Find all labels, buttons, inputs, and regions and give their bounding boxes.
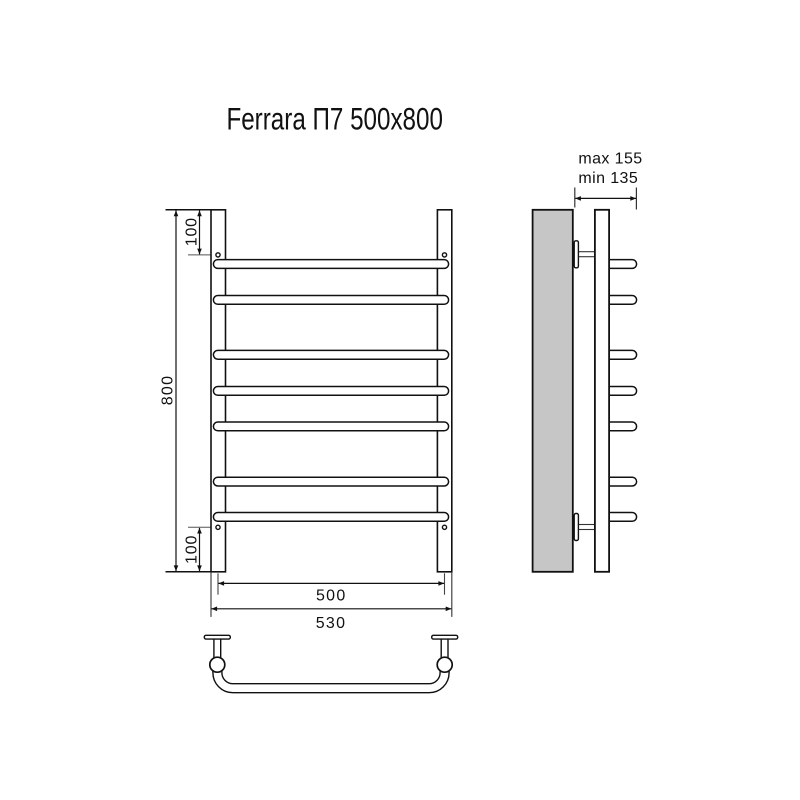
svg-text:800: 800 [160,375,177,406]
svg-text:min 135: min 135 [578,170,638,187]
svg-text:530: 530 [316,615,347,632]
svg-text:500: 500 [316,588,347,605]
svg-text:100: 100 [184,217,201,246]
svg-text:100: 100 [184,535,201,564]
svg-text:Ferrara П7 500x800: Ferrara П7 500x800 [226,101,443,137]
svg-text:max 155: max 155 [578,151,642,168]
